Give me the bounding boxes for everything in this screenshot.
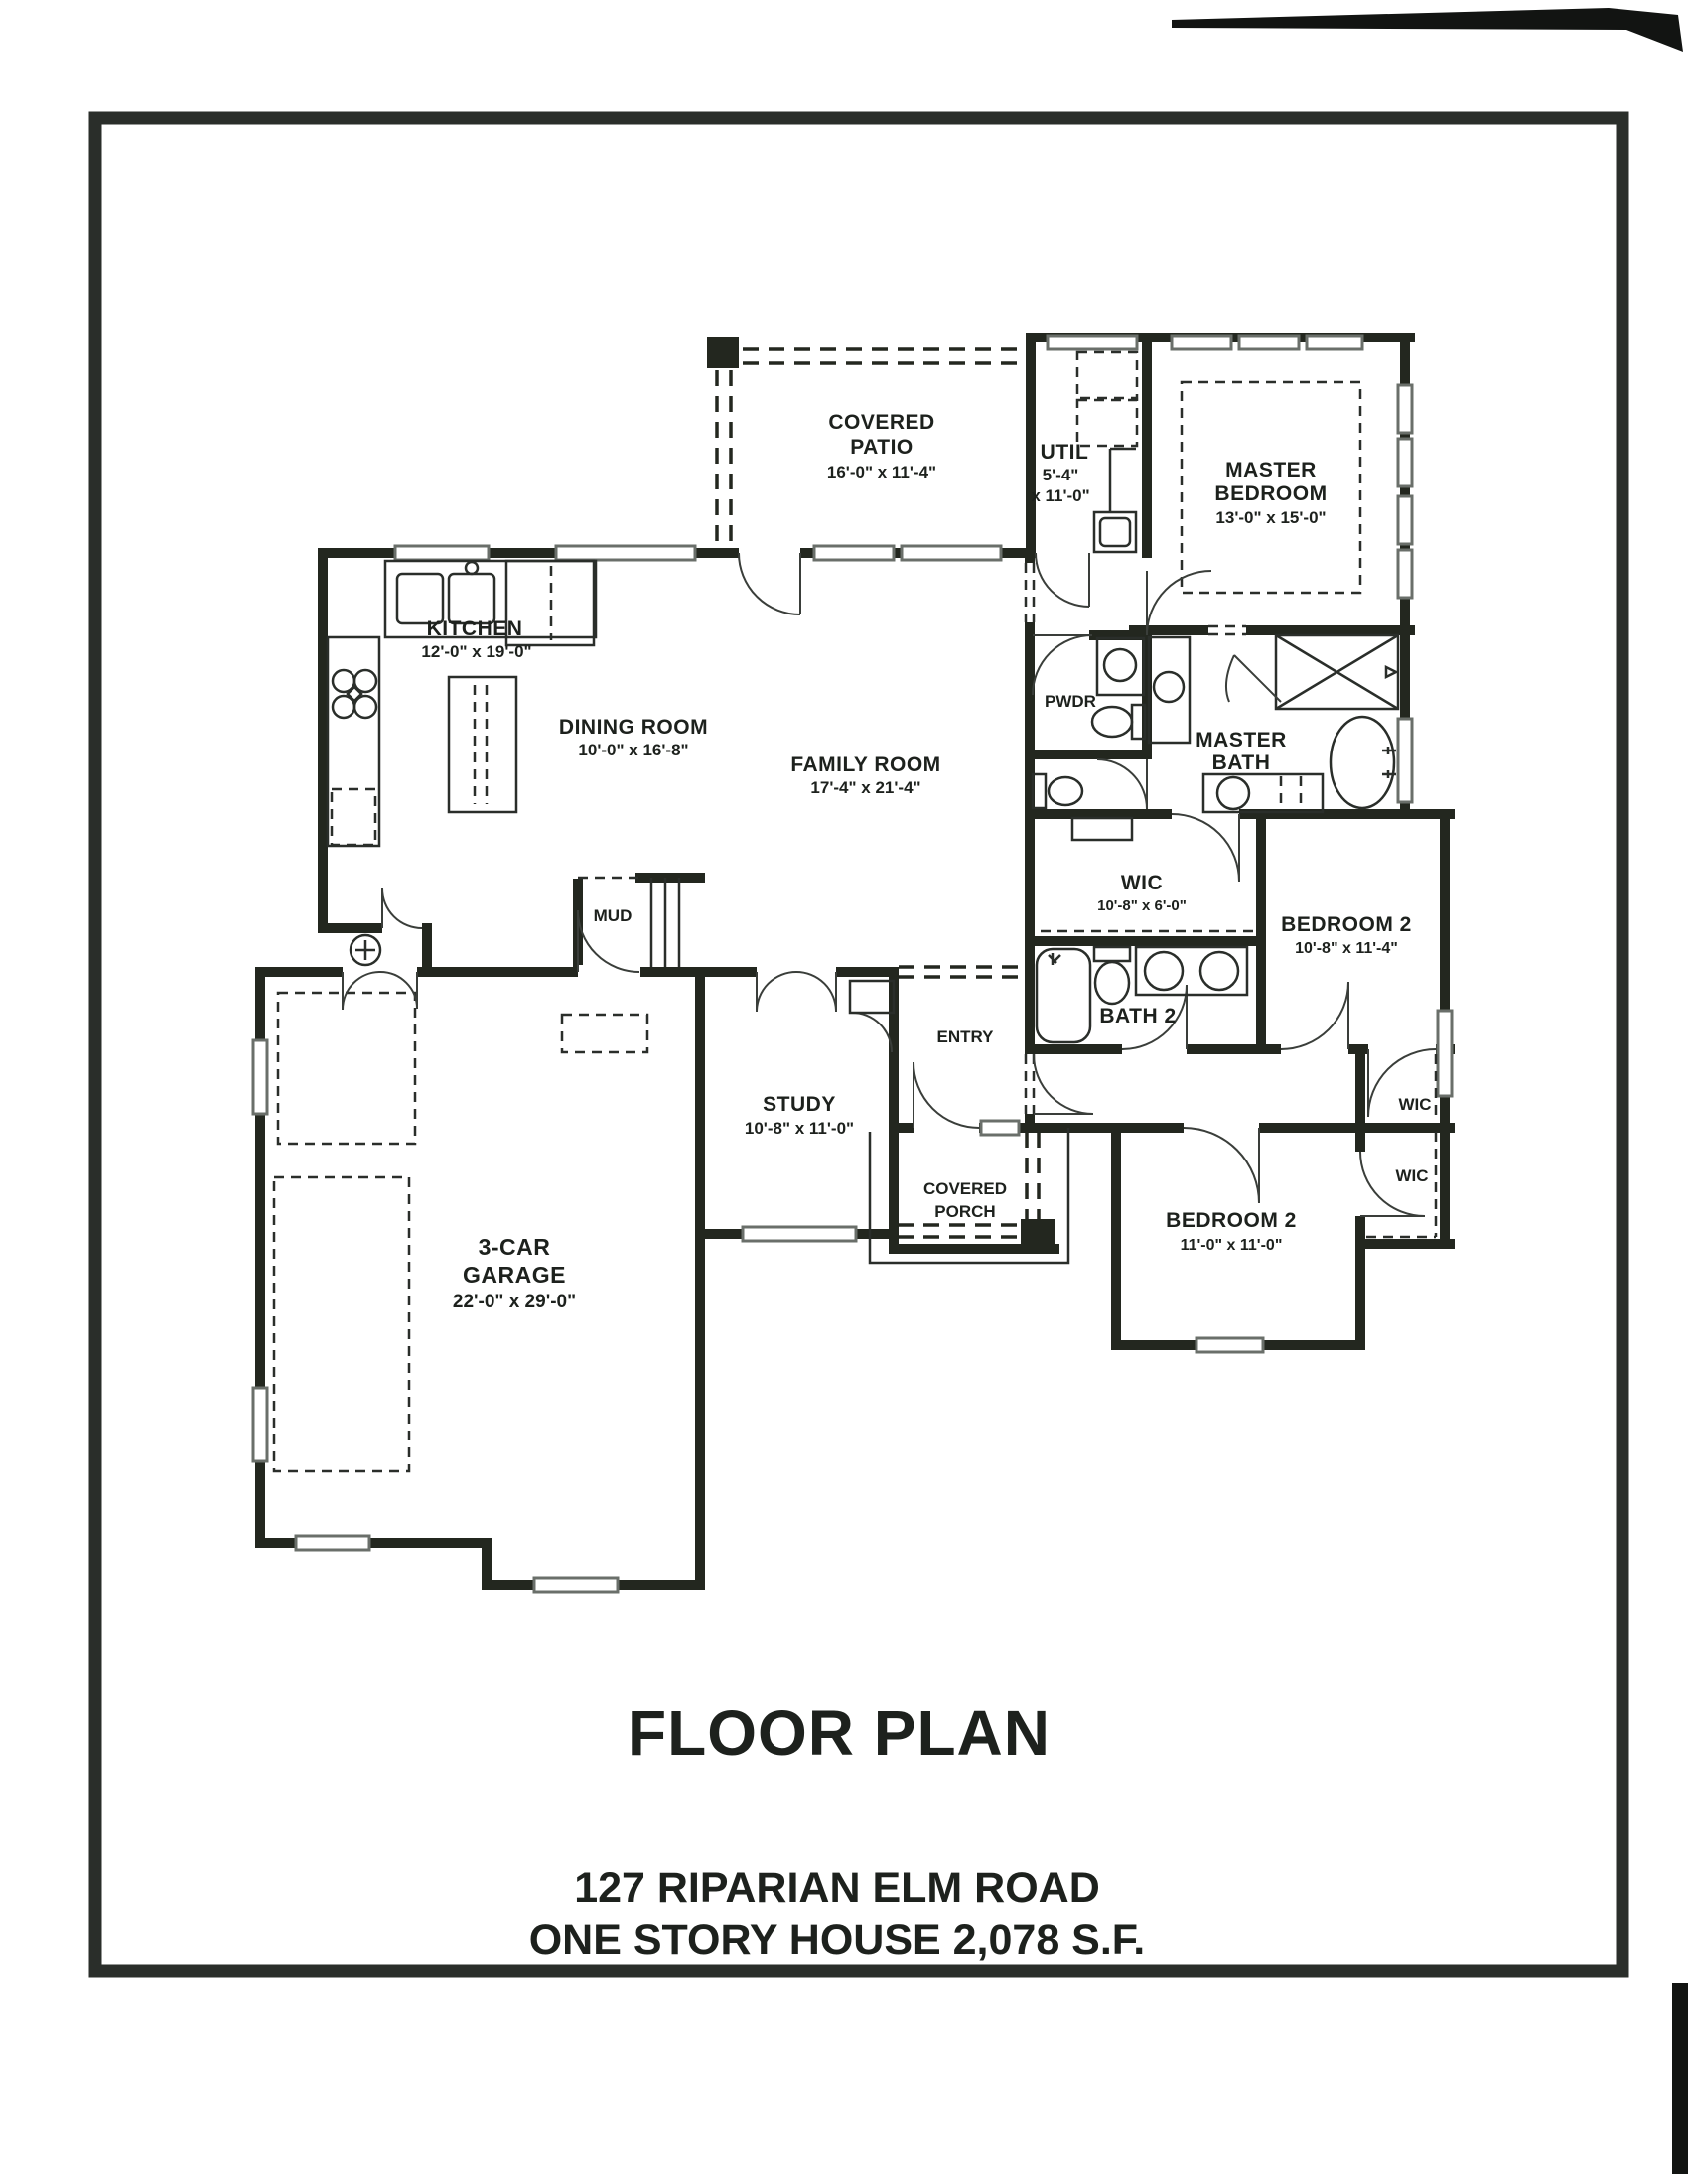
bath2-tub — [1037, 949, 1090, 1042]
bath2-vanity — [1136, 947, 1247, 995]
page-title: FLOOR PLAN — [628, 1698, 1051, 1769]
svg-text:BATH: BATH — [1212, 751, 1271, 774]
room-label-wic-lower: WIC — [1395, 1166, 1428, 1185]
svg-text:COVERED: COVERED — [828, 411, 934, 434]
svg-text:16'-0" x 11'-4": 16'-0" x 11'-4" — [827, 463, 936, 481]
cooktop — [333, 670, 376, 718]
room-label-wic-upper: WIC — [1398, 1095, 1431, 1114]
svg-text:MASTER: MASTER — [1196, 729, 1287, 751]
svg-text:BEDROOM 2: BEDROOM 2 — [1281, 913, 1412, 936]
room-label-pwdr: PWDR — [1045, 692, 1096, 711]
svg-text:COVERED: COVERED — [923, 1179, 1007, 1198]
svg-text:12'-0" x 19'-0": 12'-0" x 19'-0" — [421, 642, 531, 661]
room-label-study: STUDY 10'-8" x 11'-0" — [745, 1093, 854, 1138]
powder-vanity — [1097, 638, 1144, 695]
room-label-family-room: FAMILY ROOM 17'-4" x 21'-4" — [790, 753, 940, 797]
scanned-floor-plan-page: COVERED PATIO 16'-0" x 11'-4" UTIL 5'-4"… — [0, 0, 1688, 2184]
laundry-sink — [1094, 449, 1136, 552]
svg-text:10'-8" x 11'-0": 10'-8" x 11'-0" — [745, 1119, 854, 1138]
svg-text:KITCHEN: KITCHEN — [427, 617, 523, 640]
svg-text:22'-0" x 29'-0": 22'-0" x 29'-0" — [453, 1292, 576, 1312]
svg-text:17'-4" x 21'-4": 17'-4" x 21'-4" — [810, 778, 920, 797]
powder-toilet — [1092, 705, 1145, 739]
room-label-covered-porch: COVERED PORCH — [923, 1179, 1007, 1221]
kitchen-counter-and-sink — [328, 561, 596, 846]
svg-text:10'-8" x 6'-0": 10'-8" x 6'-0" — [1097, 897, 1187, 914]
svg-text:10'-8" x 11'-4": 10'-8" x 11'-4" — [1295, 940, 1398, 957]
svg-text:UTIL: UTIL — [1041, 441, 1089, 464]
address-line-1: 127 RIPARIAN ELM ROAD — [574, 1864, 1100, 1912]
svg-text:10'-0" x 16'-8": 10'-0" x 16'-8" — [578, 741, 688, 759]
room-label-entry: ENTRY — [937, 1027, 995, 1046]
room-label-master-bedroom: MASTER BEDROOM 13'-0" x 15'-0" — [1214, 459, 1327, 527]
svg-text:3-CAR: 3-CAR — [479, 1234, 551, 1260]
svg-text:WIC: WIC — [1121, 872, 1163, 894]
room-label-bath2: BATH 2 — [1099, 1005, 1176, 1027]
room-label-master-bath: MASTER BATH — [1196, 729, 1287, 774]
svg-text:STUDY: STUDY — [763, 1093, 836, 1116]
mud-lockers — [651, 878, 679, 967]
master-tub — [1331, 717, 1396, 808]
bath2-toilet — [1094, 947, 1130, 1004]
master-vanity-left — [1149, 637, 1190, 743]
study-niche — [850, 981, 894, 1013]
svg-text:DINING ROOM: DINING ROOM — [559, 716, 708, 739]
master-toilet — [1033, 774, 1082, 808]
room-label-dining-room: DINING ROOM 10'-0" x 16'-8" — [559, 716, 708, 759]
scan-artifact-top-right — [1172, 8, 1683, 52]
fixtures — [328, 449, 1398, 1263]
room-label-covered-patio: COVERED PATIO 16'-0" x 11'-4" — [827, 411, 936, 481]
svg-text:PATIO: PATIO — [850, 436, 914, 459]
room-label-garage: 3-CAR GARAGE 22'-0" x 29'-0" — [453, 1234, 576, 1312]
svg-text:BEDROOM 2: BEDROOM 2 — [1166, 1209, 1297, 1232]
svg-text:13'-0" x 15'-0": 13'-0" x 15'-0" — [1215, 508, 1326, 527]
floor-plan-drawing: COVERED PATIO 16'-0" x 11'-4" UTIL 5'-4"… — [0, 0, 1688, 2184]
master-shower — [1226, 635, 1398, 709]
master-vanity-bottom — [1203, 774, 1323, 812]
kitchen-island — [449, 677, 516, 812]
svg-text:5'-4": 5'-4" — [1043, 466, 1079, 484]
scan-artifact-bottom-right — [1672, 1983, 1688, 2174]
wic-shelf — [1072, 818, 1132, 840]
svg-text:MASTER: MASTER — [1225, 459, 1317, 481]
address-line-2: ONE STORY HOUSE 2,078 S.F. — [529, 1916, 1146, 1964]
svg-text:BEDROOM: BEDROOM — [1214, 482, 1327, 505]
room-label-util: UTIL 5'-4" x 11'-0" — [1031, 441, 1089, 505]
svg-text:PORCH: PORCH — [934, 1202, 995, 1221]
room-label-mud: MUD — [594, 906, 633, 925]
svg-text:GARAGE: GARAGE — [463, 1262, 566, 1288]
title-block: FLOOR PLAN 127 RIPARIAN ELM ROAD ONE STO… — [529, 1698, 1146, 1964]
room-label-bedroom2-upper: BEDROOM 2 10'-8" x 11'-4" — [1281, 913, 1412, 957]
svg-text:FAMILY ROOM: FAMILY ROOM — [790, 753, 940, 776]
utility-sink — [351, 935, 380, 965]
svg-text:x 11'-0": x 11'-0" — [1031, 486, 1089, 505]
room-label-bedroom2-lower: BEDROOM 2 11'-0" x 11'-0" — [1166, 1209, 1297, 1254]
room-label-kitchen: KITCHEN 12'-0" x 19'-0" — [421, 617, 531, 661]
room-label-wic-master: WIC 10'-8" x 6'-0" — [1097, 872, 1187, 914]
svg-text:11'-0" x 11'-0": 11'-0" x 11'-0" — [1181, 1237, 1283, 1254]
